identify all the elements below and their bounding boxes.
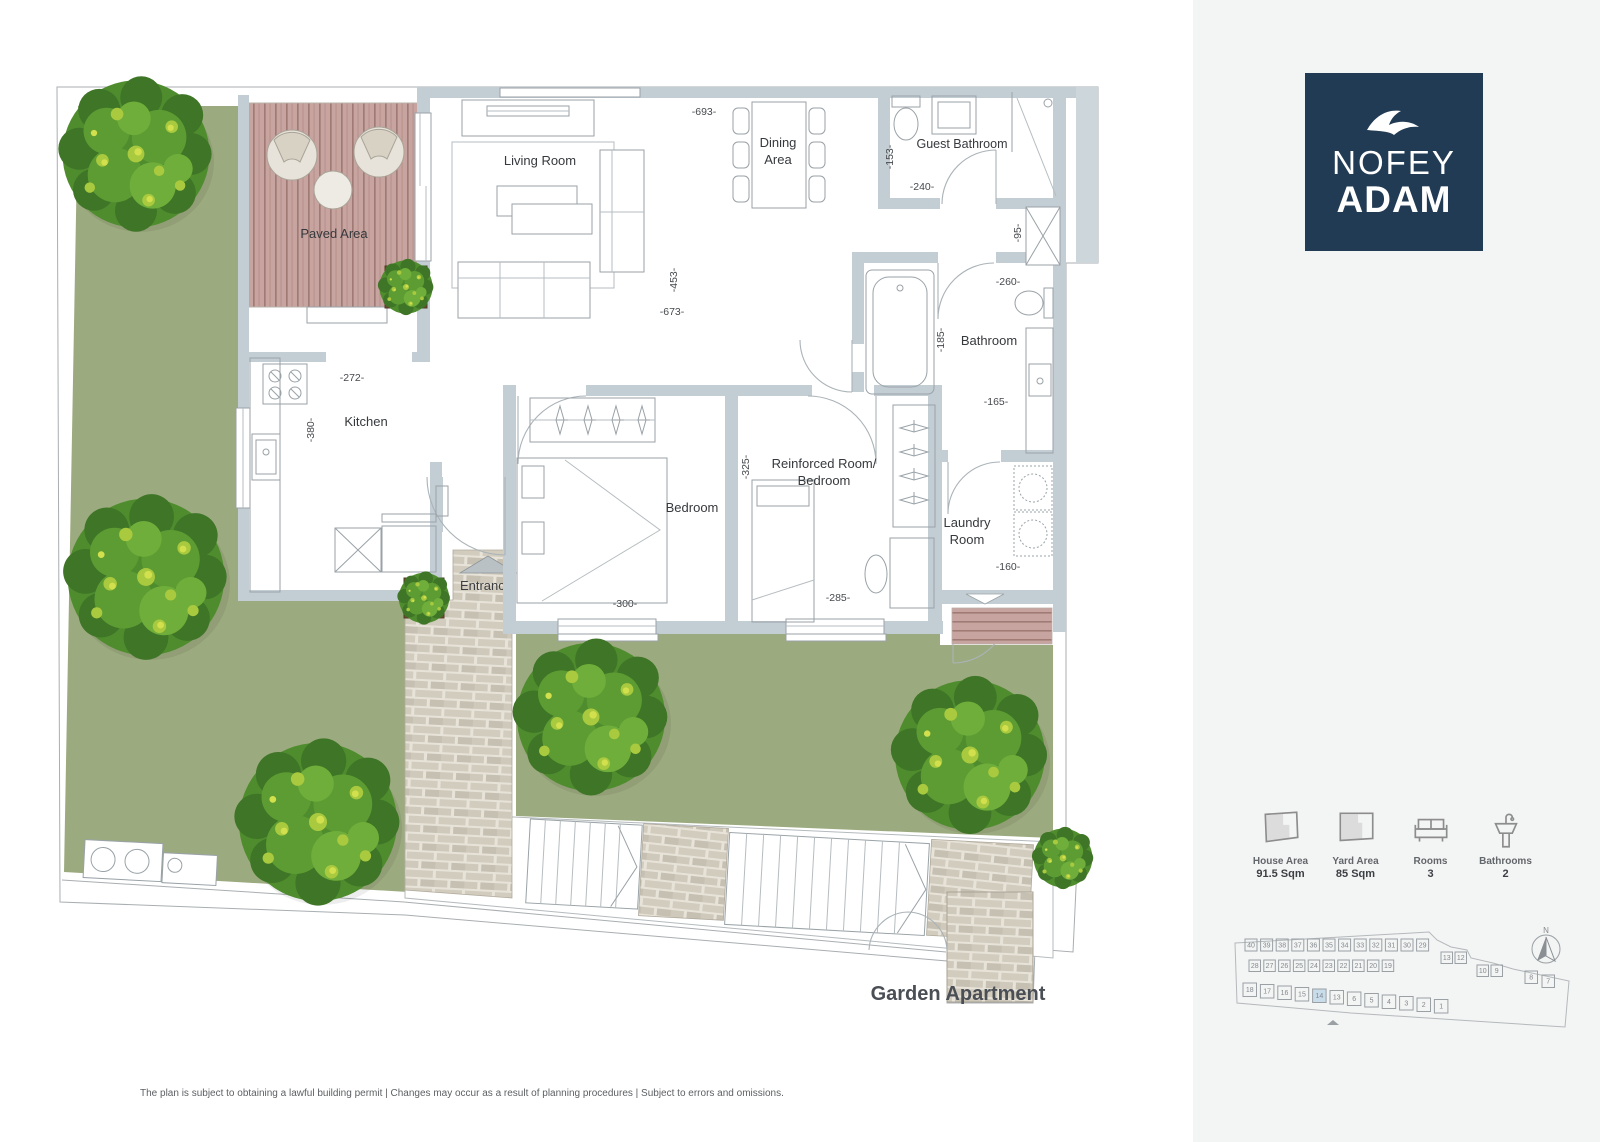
bedroom-label: Bedroom bbox=[666, 500, 719, 515]
svg-text:2: 2 bbox=[1422, 1002, 1426, 1009]
svg-text:8: 8 bbox=[1529, 975, 1533, 982]
reinforced-room-label-2: Bedroom bbox=[798, 473, 851, 488]
potted-plant bbox=[378, 259, 433, 315]
svg-text:39: 39 bbox=[1263, 942, 1271, 949]
svg-text:3: 3 bbox=[1404, 1001, 1408, 1008]
dim-673: -673- bbox=[660, 306, 685, 318]
svg-text:31: 31 bbox=[1388, 942, 1396, 949]
laundry-label-2: Room bbox=[950, 532, 985, 547]
room-labels: Living Room Dining Area Guest Bathroom K… bbox=[344, 135, 1017, 547]
stats-row: House Area 91.5 Sqm Yard Area 85 Sqm bbox=[1243, 800, 1543, 880]
stat-house-area: House Area 91.5 Sqm bbox=[1243, 800, 1318, 880]
stat-value: 2 bbox=[1502, 868, 1508, 880]
dim-380: -380- bbox=[305, 417, 317, 442]
dining-area-label-2: Area bbox=[764, 152, 792, 167]
dim-240: -240- bbox=[910, 181, 935, 193]
svg-text:21: 21 bbox=[1354, 963, 1362, 970]
svg-text:20: 20 bbox=[1369, 963, 1377, 970]
svg-text:27: 27 bbox=[1266, 963, 1274, 970]
svg-text:1: 1 bbox=[1439, 1004, 1443, 1011]
svg-text:24: 24 bbox=[1310, 963, 1318, 970]
site-map: 4039383736353433323130292827262524232221… bbox=[1231, 925, 1576, 1043]
deck-table bbox=[314, 171, 352, 209]
svg-text:25: 25 bbox=[1295, 963, 1303, 970]
potted-plant bbox=[397, 571, 450, 624]
brand-logo: NOFEY ADAM bbox=[1305, 73, 1483, 251]
deck-armchair bbox=[354, 127, 404, 177]
stat-label: House Area bbox=[1253, 856, 1308, 867]
site-map-marker bbox=[1327, 1020, 1339, 1025]
svg-text:33: 33 bbox=[1356, 942, 1364, 949]
dim-160: -160- bbox=[996, 561, 1021, 573]
stat-value: 91.5 Sqm bbox=[1256, 868, 1304, 880]
svg-text:35: 35 bbox=[1325, 942, 1333, 949]
dining-area-label-1: Dining bbox=[760, 135, 797, 150]
stairs-flight-1 bbox=[526, 819, 643, 909]
stat-value: 85 Sqm bbox=[1336, 868, 1375, 880]
svg-text:5: 5 bbox=[1370, 998, 1374, 1005]
brand-name-line2: ADAM bbox=[1337, 181, 1452, 220]
stat-label: Rooms bbox=[1414, 856, 1448, 867]
dim-260: -260- bbox=[996, 276, 1021, 288]
svg-text:16: 16 bbox=[1281, 990, 1289, 997]
svg-text:28: 28 bbox=[1251, 963, 1259, 970]
svg-text:12: 12 bbox=[1457, 955, 1465, 962]
dim-285: -285- bbox=[826, 592, 851, 604]
seagull-icon bbox=[1363, 104, 1425, 140]
floor-plan: Entrance bbox=[0, 0, 1165, 1142]
svg-text:6: 6 bbox=[1352, 996, 1356, 1003]
svg-text:34: 34 bbox=[1341, 942, 1349, 949]
svg-text:18: 18 bbox=[1246, 987, 1254, 994]
furniture-bathroom bbox=[866, 270, 1053, 453]
svg-text:37: 37 bbox=[1294, 942, 1302, 949]
stat-label: Bathrooms bbox=[1479, 856, 1532, 867]
house-area-icon bbox=[1258, 806, 1304, 852]
svg-text:17: 17 bbox=[1263, 989, 1271, 996]
dim-272: -272- bbox=[340, 372, 365, 384]
svg-text:26: 26 bbox=[1280, 963, 1288, 970]
north-label: N bbox=[1543, 926, 1549, 935]
svg-text:9: 9 bbox=[1495, 968, 1499, 975]
svg-text:14: 14 bbox=[1315, 993, 1323, 1000]
living-room-label: Living Room bbox=[504, 153, 576, 168]
dim-300: -300- bbox=[613, 598, 638, 610]
dim-165: -165- bbox=[984, 396, 1009, 408]
furniture-living-room bbox=[452, 100, 644, 318]
bathrooms-icon bbox=[1483, 806, 1529, 852]
svg-text:13: 13 bbox=[1333, 995, 1341, 1002]
plan-title: Garden Apartment bbox=[858, 983, 1058, 1006]
dim-693: -693- bbox=[692, 106, 717, 118]
north-compass-icon: N bbox=[1532, 926, 1560, 963]
sidebar: NOFEY ADAM House Area 91.5 Sqm Yard Area… bbox=[1193, 0, 1600, 1142]
yard-area-icon bbox=[1333, 806, 1379, 852]
furniture-reinforced-room bbox=[752, 405, 935, 641]
dim-153: -153- bbox=[884, 144, 896, 169]
reinforced-room-label-1: Reinforced Room/ bbox=[772, 456, 877, 471]
stat-label: Yard Area bbox=[1332, 856, 1378, 867]
furniture-laundry bbox=[1014, 466, 1052, 556]
svg-text:22: 22 bbox=[1340, 963, 1348, 970]
furniture-bedroom bbox=[517, 398, 667, 641]
svg-text:10: 10 bbox=[1479, 968, 1487, 975]
svg-text:32: 32 bbox=[1372, 942, 1380, 949]
dim-325: -325- bbox=[740, 454, 752, 479]
svg-text:23: 23 bbox=[1325, 963, 1333, 970]
rooms-icon bbox=[1408, 806, 1454, 852]
stat-rooms: Rooms 3 bbox=[1393, 800, 1468, 880]
guest-bathroom-label: Guest Bathroom bbox=[916, 137, 1007, 151]
stairs-flight-2 bbox=[725, 832, 930, 935]
dim-453: -453- bbox=[668, 267, 680, 292]
laundry-label-1: Laundry bbox=[944, 515, 991, 530]
dim-95: -95- bbox=[1012, 223, 1024, 242]
brand-name-line1: NOFEY bbox=[1332, 146, 1456, 181]
svg-text:13: 13 bbox=[1443, 955, 1451, 962]
stat-value: 3 bbox=[1427, 868, 1433, 880]
page: Entrance bbox=[0, 0, 1600, 1142]
disclaimer-text: The plan is subject to obtaining a lawfu… bbox=[140, 1088, 784, 1099]
kitchen-label: Kitchen bbox=[344, 414, 387, 429]
svg-text:29: 29 bbox=[1419, 942, 1427, 949]
stat-yard-area: Yard Area 85 Sqm bbox=[1318, 800, 1393, 880]
svg-text:7: 7 bbox=[1546, 979, 1550, 986]
dim-185: -185- bbox=[935, 327, 947, 352]
laundry-step-deck bbox=[952, 608, 1052, 644]
paved-area-label: Paved Area bbox=[300, 226, 368, 241]
deck-armchair bbox=[267, 130, 317, 180]
svg-text:4: 4 bbox=[1387, 999, 1391, 1006]
svg-text:19: 19 bbox=[1384, 963, 1392, 970]
svg-text:30: 30 bbox=[1403, 942, 1411, 949]
svg-text:36: 36 bbox=[1310, 942, 1318, 949]
svg-text:15: 15 bbox=[1298, 992, 1306, 999]
svg-text:40: 40 bbox=[1247, 942, 1255, 949]
svg-text:38: 38 bbox=[1278, 942, 1286, 949]
stat-bathrooms: Bathrooms 2 bbox=[1468, 800, 1543, 880]
bathroom-label: Bathroom bbox=[961, 333, 1017, 348]
